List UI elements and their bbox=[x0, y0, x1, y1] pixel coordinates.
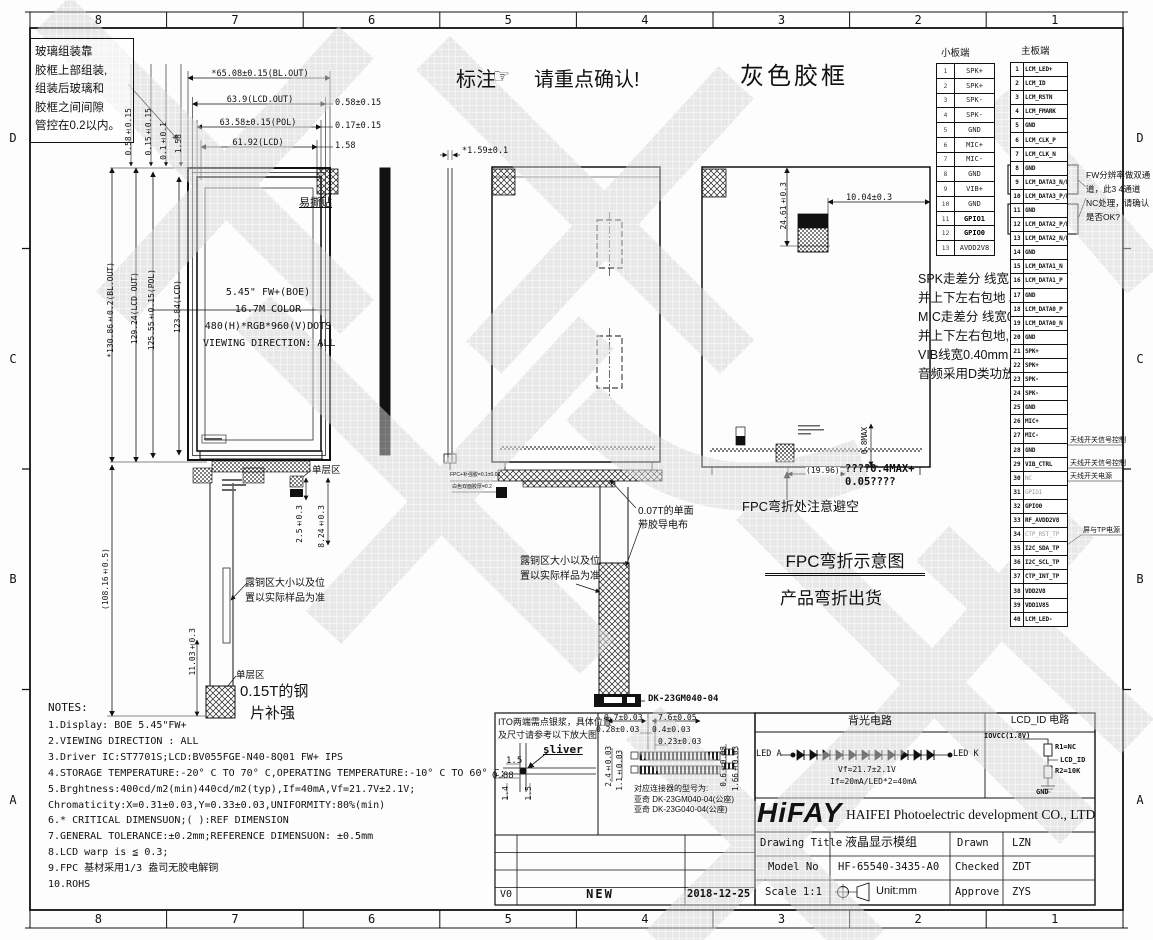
annotation-label: 标注 bbox=[456, 70, 496, 90]
note-line: 5.Brghtness:400cd/m2(min)440cd/m2(typ),I… bbox=[48, 782, 506, 798]
revision-desc: NEW bbox=[560, 888, 640, 900]
led-vf-label: Vf=21.7±2.1V bbox=[838, 766, 896, 774]
dim-right-2: 0.17±0.15 bbox=[335, 122, 381, 131]
pin-row: 28GND bbox=[1011, 443, 1067, 457]
pin-row: 36I2C_SCL_TP bbox=[1011, 555, 1067, 569]
pin-row: 13AVDD2V8 bbox=[937, 240, 994, 255]
antenna-power-note: 天线开关电源 bbox=[1070, 473, 1112, 480]
panel-spec-text: 5.45" FW+(BOE)16.7M COLOR480(H)*RGB*960(… bbox=[203, 284, 333, 352]
pin-row: 19LCM_DATA0_N bbox=[1011, 316, 1067, 330]
pin-row: 4SPK- bbox=[937, 107, 994, 122]
pointing-hand-icon: ☞ bbox=[494, 64, 508, 88]
dim-tail-3: 11.03±0.3 bbox=[188, 628, 197, 676]
pin-row: 39VDD1V85 bbox=[1011, 598, 1067, 612]
pin-row: 27MIC- bbox=[1011, 428, 1067, 442]
note-line: 2.VIEWING DIRECTION : ALL bbox=[48, 734, 506, 750]
pin-row: 16LCM_DATA1_P bbox=[1011, 273, 1067, 287]
zone-label: 7 bbox=[167, 911, 304, 926]
company-name: HAIFEI Photoelectric development CO., LT… bbox=[846, 808, 1095, 822]
pitch-dim-5: 0.23±0.03 bbox=[658, 738, 701, 746]
pin-row: 34CTP_RST_TP bbox=[1011, 527, 1067, 541]
pin-row: 2SPK+ bbox=[937, 78, 994, 93]
pitch-dim-2: 7.6±0.05 bbox=[658, 714, 697, 722]
fpc-bend-title: FPC弯折示意图 bbox=[765, 553, 925, 576]
led-if-label: If=20mA/LED*2=40mA bbox=[830, 778, 917, 786]
pitch-dim-3: 0.28±0.03 bbox=[596, 726, 639, 734]
drawn-value: LZN bbox=[1012, 838, 1031, 849]
foam-note-2: 0.05???? bbox=[845, 477, 896, 488]
antenna-switch-note-2: 天线开关信号控制 bbox=[1070, 460, 1126, 467]
main-board-pin-table: 1LCM_LED+2LCM_ID3LCM_RSTN4LCM_FMARK5GND6… bbox=[1010, 62, 1068, 627]
iovcc-label: IOVCC(1.8V) bbox=[984, 733, 1030, 740]
dim-bl-out-height: *130.86±0.2(BL.OUT) bbox=[106, 262, 115, 358]
pin-row: 12GPIO0 bbox=[937, 225, 994, 240]
dim-tail-1: 2.5±0.3 bbox=[295, 505, 304, 543]
zone-label: 3 bbox=[713, 12, 850, 27]
lcdid-header: LCD_ID 电路 bbox=[990, 716, 1090, 726]
small-board-title: 小板端 bbox=[941, 49, 970, 59]
pin-row: 3SPK- bbox=[937, 93, 994, 108]
dim-small-3: 0.1±0.1 bbox=[159, 122, 168, 160]
zone-label: 8 bbox=[30, 12, 167, 27]
zone-label: B bbox=[1133, 469, 1147, 690]
pin-row: 12LCM_DATA2_P/NC bbox=[1011, 217, 1067, 231]
zone-label: D bbox=[6, 28, 20, 249]
confirm-heading: 请重点确认! bbox=[534, 70, 640, 90]
led-cathode-label: LED K bbox=[953, 750, 979, 759]
dim-lcd-width: 61.92(LCD) bbox=[200, 139, 316, 148]
dim-tail-total: (108.16±0.5) bbox=[101, 548, 110, 610]
drawn-label: Drawn bbox=[957, 838, 989, 849]
dim-pol-height: 125.55±0.15(POL) bbox=[147, 269, 156, 350]
pitch-vdim-1: 2.4±0.03 bbox=[604, 746, 613, 787]
zone-label: 1 bbox=[986, 12, 1123, 27]
note-line: 7.GENERAL TOLERANCE:±0.2mm;REFERENCE DIM… bbox=[48, 829, 506, 845]
pitch-dim-1: 0.7±0.03 bbox=[604, 714, 643, 722]
sliver-dim-3: 1.4 bbox=[501, 786, 510, 800]
zone-label: A bbox=[6, 690, 20, 911]
pin-row: 15LCM_DATA1_N bbox=[1011, 259, 1067, 273]
pin-row: 38VDD2V8 bbox=[1011, 583, 1067, 597]
connector-part-number: DK-23GM040-04 bbox=[648, 695, 718, 704]
fpc-bend-subtitle: 产品弯折出货 bbox=[780, 590, 882, 607]
notes-title: NOTES: bbox=[48, 702, 88, 713]
approve-label: Approve bbox=[955, 887, 999, 898]
checked-value: ZDT bbox=[1012, 862, 1031, 873]
antenna-switch-note-1: 天线开关信号控制 bbox=[1070, 437, 1126, 444]
dim-thickness: *1.59±0.1 bbox=[462, 147, 508, 156]
stack-note-2: 白色双面胶厚=0.2 bbox=[452, 485, 492, 490]
pin-row: 26MIC+ bbox=[1011, 414, 1067, 428]
zone-label: C bbox=[6, 249, 20, 470]
gnd-label: GND bbox=[1036, 789, 1049, 796]
model-label: Model No bbox=[768, 862, 819, 873]
note-line: 1.Display: BOE 5.45"FW+ bbox=[48, 718, 506, 734]
single-layer-label-2: 单层区 bbox=[236, 671, 265, 681]
pitch-dim-4: 0.4±0.03 bbox=[652, 726, 691, 734]
zone-label: 3 bbox=[713, 911, 850, 926]
dim-bl-out-width: *65.08±0.15(BL.OUT) bbox=[195, 70, 325, 79]
pin-row: 24SPK- bbox=[1011, 386, 1067, 400]
pin-row: 4LCM_FMARK bbox=[1011, 104, 1067, 118]
scale-label: Scale 1:1 bbox=[765, 887, 822, 898]
dim-small-1: 0.58±0.15 bbox=[124, 108, 133, 156]
pin-row: 1LCM_LED+ bbox=[1011, 63, 1067, 76]
sliver-label: sliver bbox=[543, 744, 583, 755]
pin-row: 1SPK+ bbox=[937, 64, 994, 78]
foam-note-1: ????0.4MAX+ bbox=[845, 464, 915, 475]
pin-row: 31GPIO1 bbox=[1011, 485, 1067, 499]
zone-label: 7 bbox=[167, 12, 304, 27]
pin-row: 7LCM_CLK_N bbox=[1011, 147, 1067, 161]
dim-max: 0.8MAX bbox=[860, 427, 869, 454]
r2-label: R2=10K bbox=[1055, 768, 1080, 775]
pin-row: 23SPK- bbox=[1011, 372, 1067, 386]
model-value: HF-65540-3435-A0 bbox=[838, 862, 939, 873]
pin-row: 10LCM_DATA3_P/NC bbox=[1011, 189, 1067, 203]
zone-label: 1 bbox=[986, 911, 1123, 926]
note-line: 3.Driver IC:ST7701S;LCD:BV055FGE-N40-8Q0… bbox=[48, 750, 506, 766]
zone-label: A bbox=[1133, 690, 1147, 911]
pin-row: 18LCM_DATA0_P bbox=[1011, 302, 1067, 316]
pin-row: 30NC bbox=[1011, 471, 1067, 485]
dim-tail-2: 8.24±0.3 bbox=[317, 505, 326, 548]
pin-row: 8GND bbox=[1011, 161, 1067, 175]
company-logo: HiFAY bbox=[757, 799, 842, 827]
dim-lcd-out-height: 129.24(LCD OUT) bbox=[130, 272, 139, 344]
main-board-title: 主板端 bbox=[1021, 47, 1050, 57]
zone-label: 5 bbox=[440, 12, 577, 27]
easy-tear-label: 易撕贴 bbox=[299, 198, 332, 209]
note-line: 6.* CRITICAL DIMENSUON;( ):REF DIMENSION bbox=[48, 813, 506, 829]
pin-row: 6MIC+ bbox=[937, 137, 994, 152]
pin-row: 33RF_AVDD2V8 bbox=[1011, 513, 1067, 527]
zone-columns-top: 87654321 bbox=[30, 12, 1123, 27]
zone-rows-left: DCBA bbox=[6, 28, 20, 910]
lcdid-net-label: LCD_ID bbox=[1060, 757, 1085, 764]
drawing-title-value: 液晶显示模组 bbox=[845, 836, 917, 848]
zone-label: B bbox=[6, 469, 20, 690]
r1-label: R1=NC bbox=[1055, 744, 1076, 751]
ito-silver-note: ITO两端需点银浆，具体位置及尺寸请参考以下放大图: bbox=[498, 716, 612, 741]
pin-row: 7MIC- bbox=[937, 152, 994, 167]
zone-label: 2 bbox=[850, 12, 987, 27]
dim-gap: (19.96) bbox=[806, 467, 840, 475]
notes-list: 1.Display: BOE 5.45"FW+2.VIEWING DIRECTI… bbox=[48, 718, 506, 893]
gray-frame-heading: 灰色胶框 bbox=[740, 65, 848, 89]
pin-row: 5GND bbox=[937, 122, 994, 137]
dim-lcd-out-width: 63.9(LCD.OUT) bbox=[200, 96, 320, 105]
unit-label: Unit:mm bbox=[876, 886, 917, 897]
note-line: 9.FPC 基材采用1/3 盎司无胶电解铜 bbox=[48, 861, 506, 877]
pin-row: 2LCM_ID bbox=[1011, 76, 1067, 90]
led-anode-label: LED A bbox=[756, 750, 782, 759]
note-line: 8.LCD warp is ≦ 0.3; bbox=[48, 845, 506, 861]
tp-power-note: 屏与TP电源 bbox=[1083, 527, 1120, 534]
pin-row: 9LCM_DATA3_N/NC bbox=[1011, 175, 1067, 189]
zone-label: 4 bbox=[577, 12, 714, 27]
pin-row: 10GND bbox=[937, 196, 994, 211]
copper-area-note-front: 露铜区大小以及位置以实际样品为准 bbox=[245, 576, 325, 606]
zone-columns-bottom: 87654321 bbox=[30, 911, 1123, 926]
dim-right-3: 1.58 bbox=[335, 142, 355, 151]
backlight-header: 背光电路 bbox=[810, 716, 930, 727]
pin-row: 11GND bbox=[1011, 203, 1067, 217]
zone-rows-right: DCBA bbox=[1133, 28, 1147, 910]
pin-row: 9VIB+ bbox=[937, 181, 994, 196]
dim-lcd-height: 123.84(LCD) bbox=[173, 280, 182, 333]
pin-row: 11GPIO1 bbox=[937, 211, 994, 226]
zone-label: C bbox=[1133, 249, 1147, 470]
dim-pol-width: 63.58±0.15(POL) bbox=[198, 119, 318, 128]
pin-row: 21SPK+ bbox=[1011, 344, 1067, 358]
glass-assembly-note: 玻璃组装靠胶框上部组装,组装后玻璃和胶框之间间隙管控在0.2以内。 bbox=[30, 38, 134, 143]
pin-row: 6LCM_CLK_P bbox=[1011, 132, 1067, 146]
fw-channel-note: FW分辨率做双通道，此3 4通道NC处理，请确认是否OK? bbox=[1086, 168, 1150, 224]
copper-area-note-back: 露铜区大小以及位置以实际样品为准 bbox=[520, 554, 600, 584]
pin-row: 29VIB_CTRL bbox=[1011, 457, 1067, 471]
sliver-dim-1: 1.5 bbox=[506, 757, 522, 766]
note-line: 10.ROHS bbox=[48, 877, 506, 893]
sliver-dim-2: 0.88 bbox=[492, 772, 514, 781]
note-line: 4.STORAGE TEMPERATURE:-20° C TO 70° C,OP… bbox=[48, 766, 506, 782]
stack-note-1: FPC+补强胶=0.1±0.03 bbox=[450, 473, 500, 478]
dim-frame-height: 24.61±0.3 bbox=[779, 182, 788, 230]
pin-row: 22SPK+ bbox=[1011, 358, 1067, 372]
pin-row: 25GND bbox=[1011, 400, 1067, 414]
single-layer-label-1: 单层区 bbox=[312, 466, 341, 476]
pitch-vdim-3: 0.6±0.03 bbox=[719, 746, 728, 787]
pin-row: 8GND bbox=[937, 166, 994, 181]
pin-row: 40LCM_LED- bbox=[1011, 612, 1067, 626]
small-board-pin-table: 1SPK+2SPK+3SPK-4SPK-5GND6MIC+7MIC-8GND9V… bbox=[936, 63, 995, 256]
note-line: Chromaticity:X=0.31±0.03,Y=0.33±0.03,UNI… bbox=[48, 798, 506, 814]
dim-right-1: 0.58±0.15 bbox=[335, 99, 381, 108]
pin-row: 35I2C_SDA_TP bbox=[1011, 541, 1067, 555]
zone-label: 6 bbox=[303, 12, 440, 27]
steel-stiffener-note-1: 0.15T的钢 bbox=[240, 684, 308, 699]
engineering-drawing-sheet: 87654321 87654321 DCBA DCBA 玻璃组装靠胶框上部组装,… bbox=[0, 0, 1153, 940]
zone-label: 8 bbox=[30, 911, 167, 926]
pin-row: 17GND bbox=[1011, 288, 1067, 302]
pin-row: 32GPIO0 bbox=[1011, 499, 1067, 513]
zone-label: 5 bbox=[440, 911, 577, 926]
fpc-bend-warning: FPC弯折处注意避空 bbox=[742, 500, 859, 513]
pitch-vdim-2: 1.1±0.03 bbox=[615, 750, 624, 791]
mating-connector-note: 对应连接器的型号为:亚奇 DK-23GM040-04(公座)亚奇 DK-23G0… bbox=[634, 784, 734, 816]
revision-date: 2018-12-25 bbox=[687, 889, 750, 900]
checked-label: Checked bbox=[955, 862, 999, 873]
approve-value: ZYS bbox=[1012, 887, 1031, 898]
drawing-title-label: Drawing Title bbox=[760, 838, 842, 849]
pin-row: 5GND bbox=[1011, 118, 1067, 132]
dim-small-2: 0.15±0.15 bbox=[144, 108, 153, 156]
sliver-dim-4: 1.5 bbox=[524, 786, 533, 800]
pin-row: 20GND bbox=[1011, 330, 1067, 344]
conductive-cloth-note: 0.07T的单面带胶导电布 bbox=[638, 505, 694, 532]
zone-label: 2 bbox=[850, 911, 987, 926]
revision-code: V0 bbox=[500, 890, 512, 900]
pin-row: 13LCM_DATA2_N/NC bbox=[1011, 231, 1067, 245]
zone-label: 6 bbox=[303, 911, 440, 926]
pin-row: 37CTP_INT_TP bbox=[1011, 569, 1067, 583]
dim-small-4: 1.58 bbox=[174, 134, 183, 153]
pin-row: 3LCM_RSTN bbox=[1011, 90, 1067, 104]
pin-row: 14GND bbox=[1011, 245, 1067, 259]
dim-frame-width: 10.04±0.3 bbox=[846, 194, 892, 203]
zone-label: 4 bbox=[577, 911, 714, 926]
